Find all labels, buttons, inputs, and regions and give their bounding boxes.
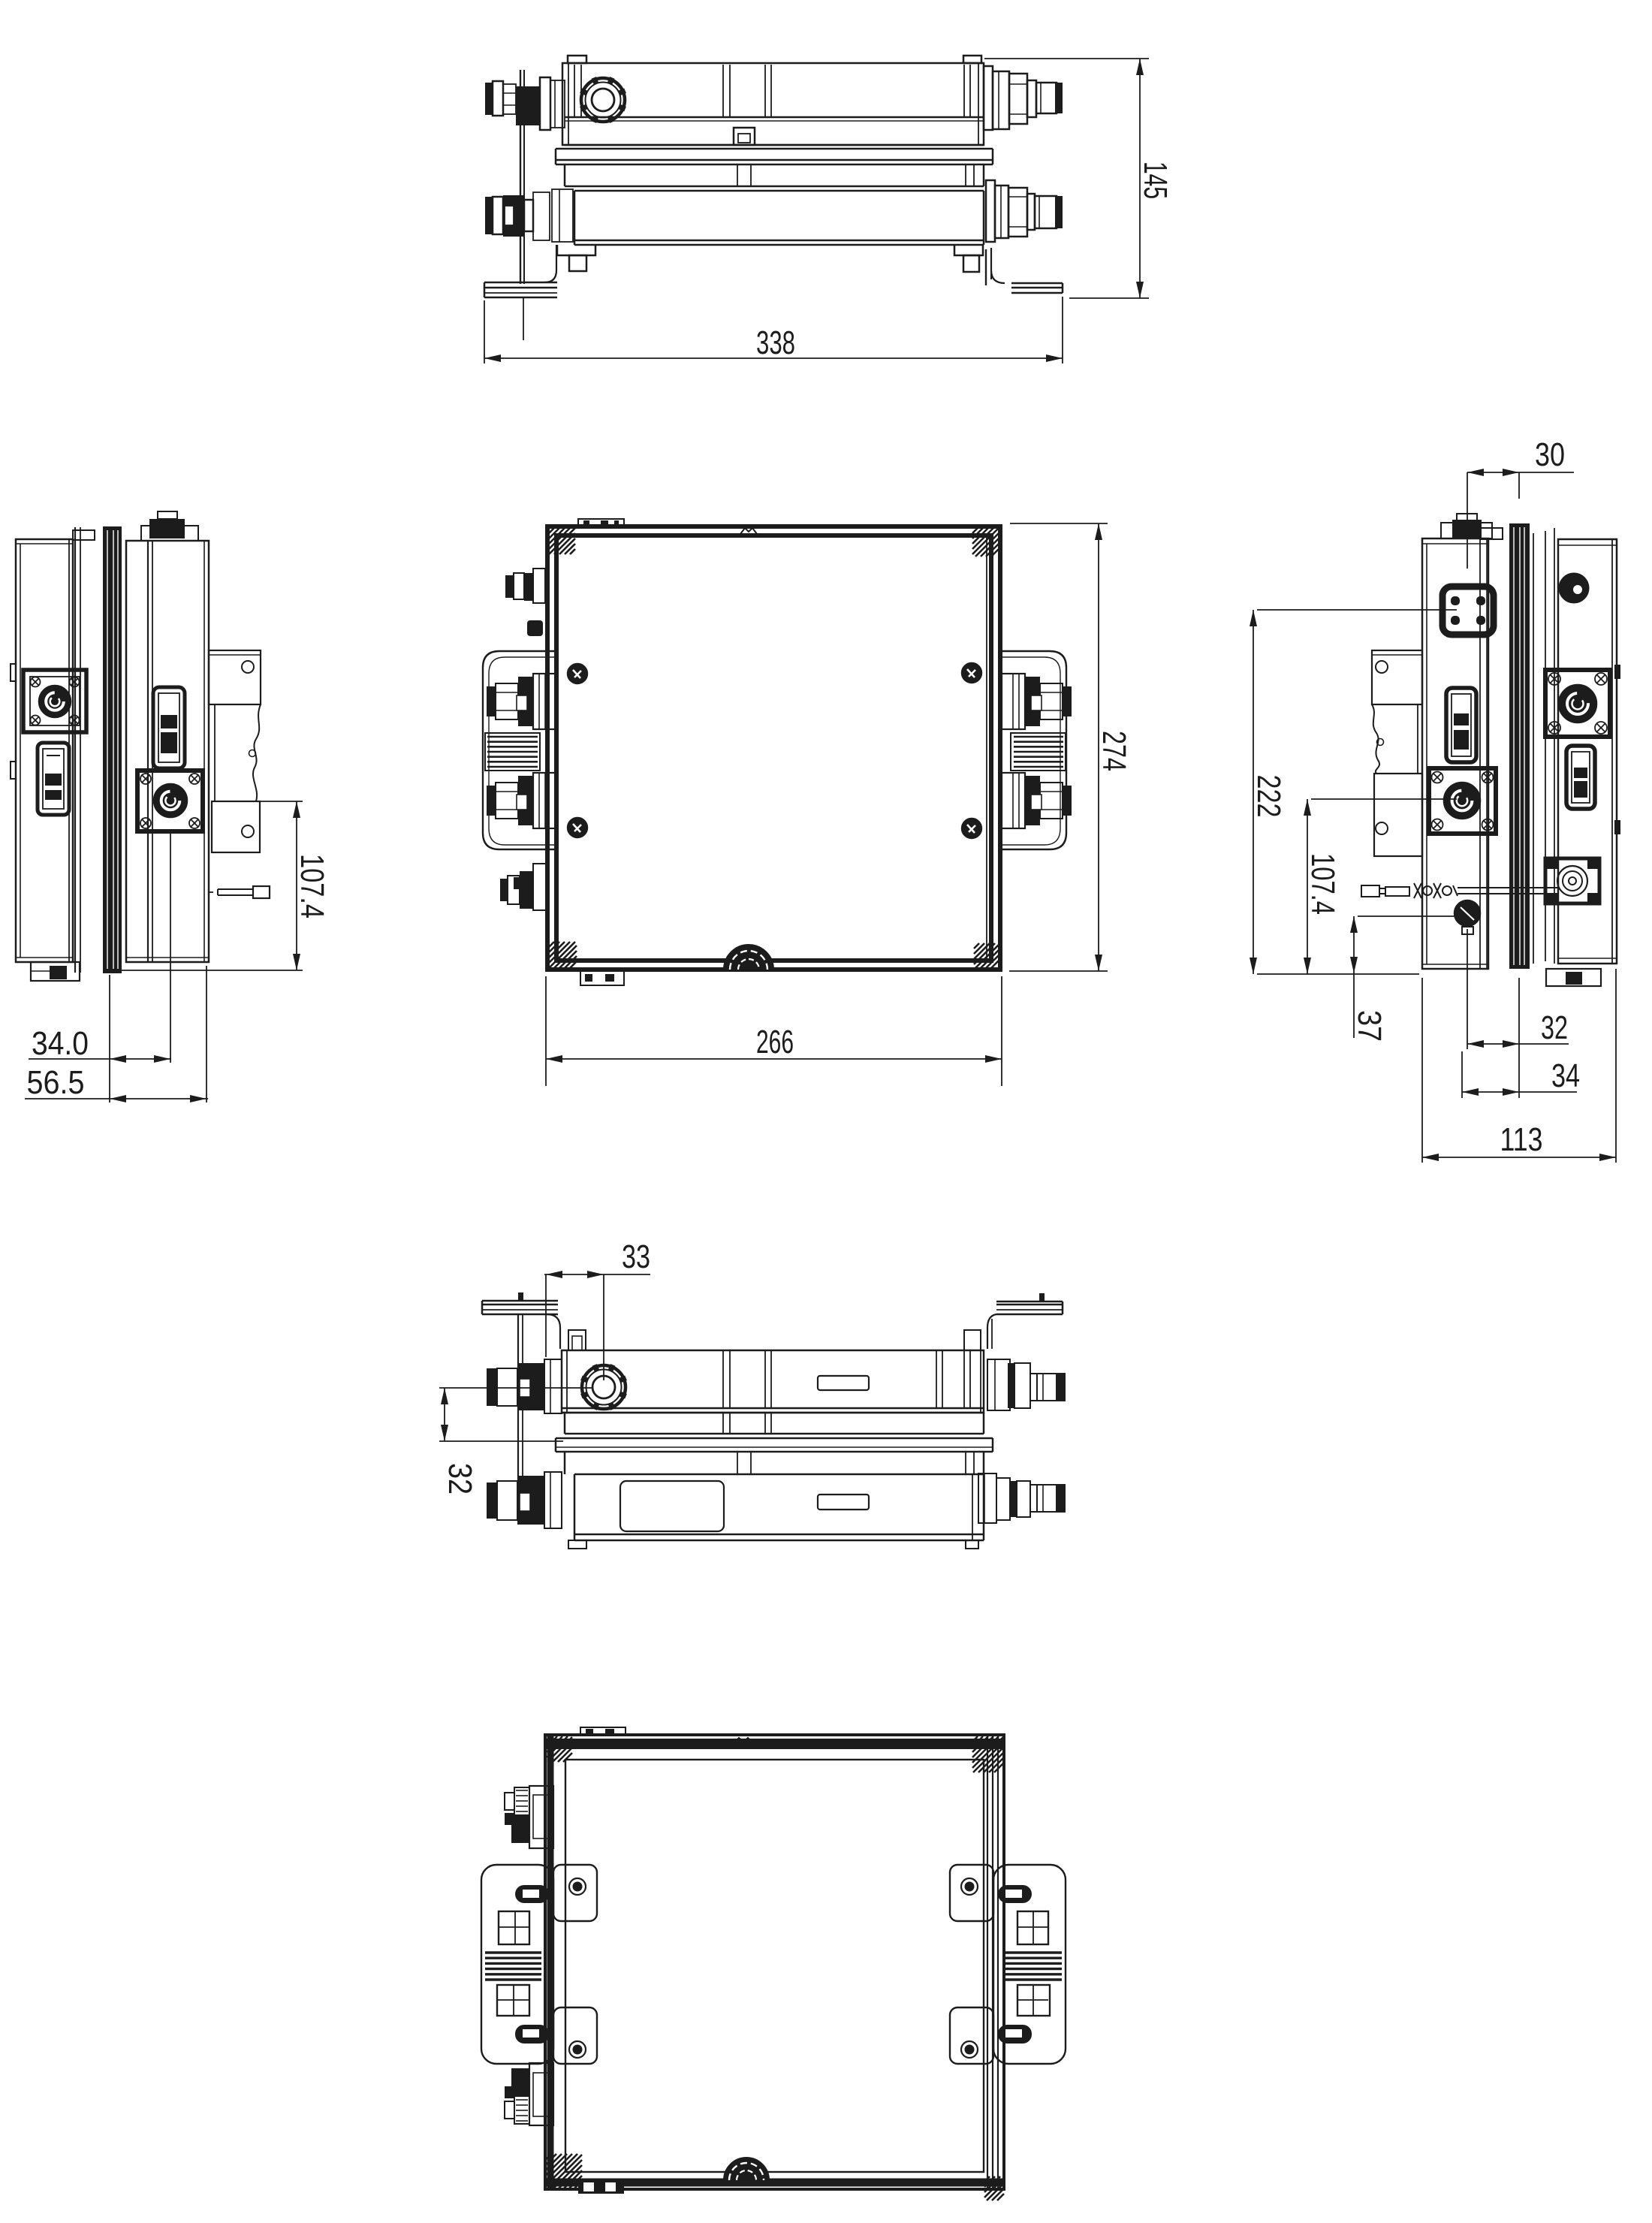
- svg-text:30: 30: [1535, 436, 1565, 473]
- svg-text:34: 34: [1551, 1057, 1580, 1094]
- svg-text:338: 338: [756, 324, 795, 361]
- svg-text:33: 33: [622, 1238, 650, 1275]
- svg-text:37: 37: [1351, 1010, 1388, 1042]
- svg-text:32: 32: [1541, 1009, 1568, 1046]
- svg-text:32: 32: [442, 1463, 478, 1495]
- svg-text:113: 113: [1500, 1121, 1543, 1158]
- svg-text:266: 266: [756, 1024, 794, 1060]
- svg-text:107.4: 107.4: [294, 854, 330, 918]
- svg-text:145: 145: [1137, 161, 1174, 199]
- svg-text:107.4: 107.4: [1304, 853, 1341, 915]
- svg-text:274: 274: [1096, 731, 1132, 771]
- svg-text:56.5: 56.5: [27, 1064, 85, 1101]
- svg-text:222: 222: [1250, 775, 1287, 818]
- svg-text:34.0: 34.0: [32, 1025, 89, 1062]
